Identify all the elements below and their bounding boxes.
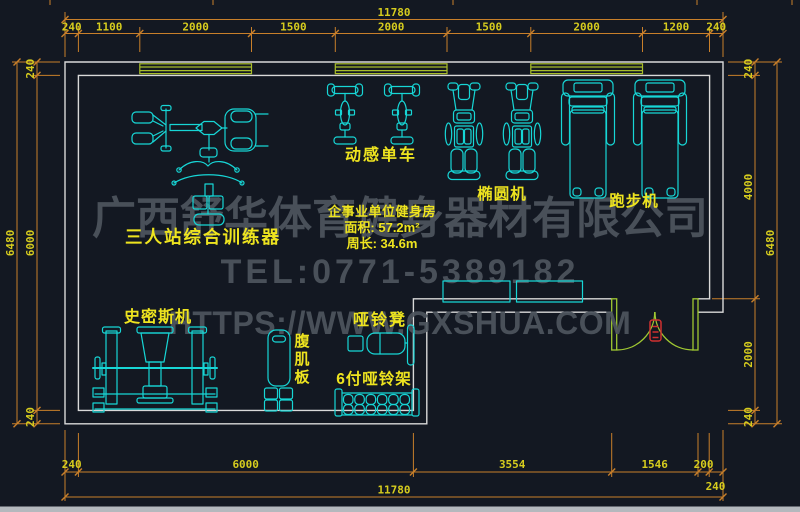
dim-left-seg-2: 240: [24, 407, 37, 427]
label-trainer: 三人站综合训练器: [125, 227, 281, 247]
dim-top-seg-0: 240: [62, 21, 82, 34]
dim-bottom-seg-1: 6000: [232, 458, 259, 471]
dim-left-overall: 6480: [4, 230, 17, 257]
room-area: 面积: 57.2m²: [344, 220, 420, 235]
spin-bike-drawing-2: [385, 84, 420, 144]
dim-bottom-seg-4: 200: [694, 458, 714, 471]
dim-top-seg-8: 240: [706, 21, 726, 34]
dimension-left: 6480 240 6000 240: [4, 59, 60, 428]
room-name: 企事业单位健身房: [327, 204, 436, 219]
dim-top-seg-2: 2000: [182, 21, 209, 34]
dim-top-seg-4: 2000: [378, 21, 405, 34]
label-spin-bike: 动感单车: [345, 145, 417, 164]
label-smith: 史密斯机: [124, 307, 192, 326]
dim-right-seg-3: 240: [742, 407, 755, 427]
label-ab-board-char-2: 板: [294, 368, 310, 386]
dim-top-overall: 11780: [377, 6, 410, 19]
treadmill-drawing-2: [634, 80, 687, 198]
dimension-bottom: 240 6000 3554 1546 200 240 11780: [62, 430, 727, 501]
dim-top-seg-1: 1100: [96, 21, 123, 34]
elliptical-drawing-1: [445, 83, 482, 180]
dim-bottom-overall: 11780: [377, 484, 410, 497]
label-ab-board-char-1: 肌: [294, 351, 309, 368]
dim-right-seg-0: 240: [742, 59, 755, 79]
label-ab-board-char-0: 腹: [294, 332, 310, 350]
dim-bottom-seg-3: 1546: [641, 458, 668, 471]
cad-floorplan-canvas: 11780 240 1100 2000 1500 2000 1500 2000 …: [0, 0, 800, 512]
dim-bottom-seg-5: 240: [706, 480, 726, 493]
elliptical-drawing-2: [503, 83, 540, 180]
window-bottom-edge: [0, 507, 800, 512]
label-elliptical: 椭圆机: [477, 184, 527, 203]
room-perimeter: 周长: 34.6m: [347, 236, 418, 251]
label-treadmill: 跑步机: [609, 191, 659, 210]
ab-board-drawing: [265, 330, 293, 411]
dim-right-seg-1: 4000: [742, 174, 755, 201]
label-dumbbell-rack: 6付哑铃架: [336, 369, 412, 388]
windows: [140, 64, 643, 74]
spin-bike-drawing-1: [328, 84, 363, 144]
dim-bottom-seg-2: 3554: [499, 458, 526, 471]
dim-bottom-seg-0: 240: [62, 458, 82, 471]
dim-top-seg-7: 1200: [663, 21, 690, 34]
dim-top-seg-6: 2000: [573, 21, 600, 34]
dimension-top: 11780 240 1100 2000 1500 2000 1500 2000 …: [50, 0, 792, 57]
dim-left-seg-0: 240: [24, 59, 37, 79]
dumbbell-rack-drawing: [335, 389, 419, 416]
floorplan-drawing: 11780 240 1100 2000 1500 2000 1500 2000 …: [0, 0, 800, 512]
dim-top-seg-3: 1500: [280, 21, 307, 34]
treadmill-drawing-1: [562, 80, 615, 198]
dim-top-seg-5: 1500: [476, 21, 503, 34]
watermark-tel: TEL:0771-5389182: [221, 253, 580, 291]
dim-right-overall: 6480: [764, 230, 777, 257]
dim-right-seg-2: 2000: [742, 341, 755, 368]
dim-left-seg-1: 6000: [24, 230, 37, 257]
label-dumbbell-bench: 哑铃凳: [353, 310, 407, 329]
